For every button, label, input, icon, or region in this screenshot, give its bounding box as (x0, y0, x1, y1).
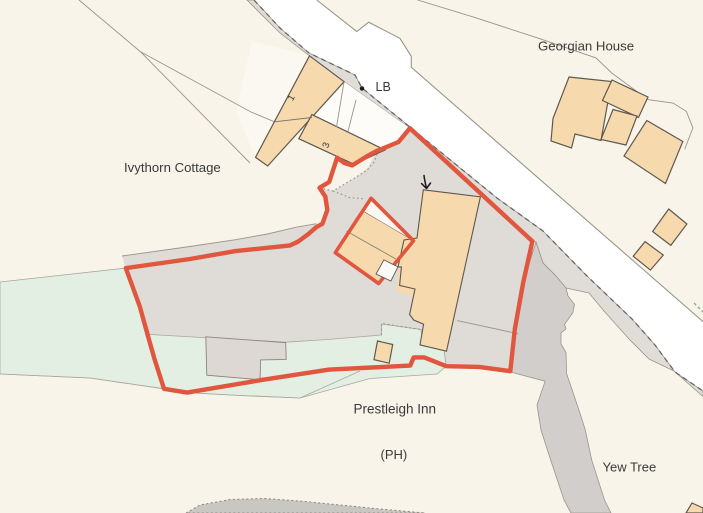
svg-text:Yew Tree: Yew Tree (603, 460, 657, 475)
svg-text:Prestleigh Inn: Prestleigh Inn (354, 402, 437, 417)
svg-text:LB: LB (376, 80, 391, 94)
svg-text:Ivythorn Cottage: Ivythorn Cottage (124, 160, 221, 175)
svg-text:(PH): (PH) (381, 447, 408, 462)
svg-text:Georgian House: Georgian House (538, 39, 634, 54)
